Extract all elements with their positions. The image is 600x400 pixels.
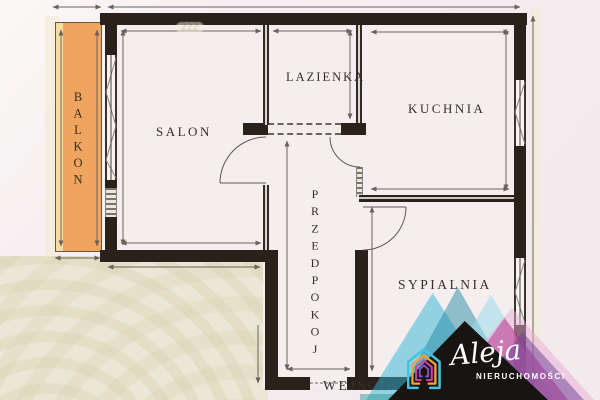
label-balkon: BALKON [70,90,85,189]
wall-salon-east-lower [263,185,269,250]
balcony-window [105,55,117,180]
label-lazienka: LAZIENKA [286,70,365,85]
wall-left-seg3 [105,217,117,250]
label-przedpokoj: PRZEDPOKOJ [307,187,322,359]
floor-plan: BALKON SALON LAZIENKA KUCHNIA PRZEDPOKOJ… [0,0,600,400]
wall-hall-west [265,250,278,390]
wall-bottom-seg1 [265,377,310,390]
wall-left-seg2 [105,180,117,188]
label-sypialnia: SYPIALNIA [398,277,492,293]
label-kuchnia: KUCHNIA [408,101,485,117]
wall-right-seg2 [514,146,526,258]
logo-brand-text: Aleja [449,333,523,372]
wall-bath-bottom-right [341,123,366,135]
beige-backdrop [0,256,268,400]
label-salon: SALON [156,124,212,140]
wall-right-seg1 [514,13,526,80]
wall-kitchen-bedroom [359,195,514,202]
house-icon [402,345,450,391]
wall-salon-bottom [100,250,278,262]
bathroom-door-opening [268,123,341,135]
logo-subtitle-text: NIERUCHOMOŚCI [476,372,566,381]
partition-hall-kitchen [356,167,363,197]
kitchen-window [514,80,526,146]
balcony-door-opening [105,188,117,217]
wall-left-seg1 [105,13,117,55]
wall-top [100,13,527,25]
wall-salon-east-upper [263,25,269,125]
wall-bedroom-west [355,250,368,377]
faded-dimension-text: 222 [176,22,204,33]
